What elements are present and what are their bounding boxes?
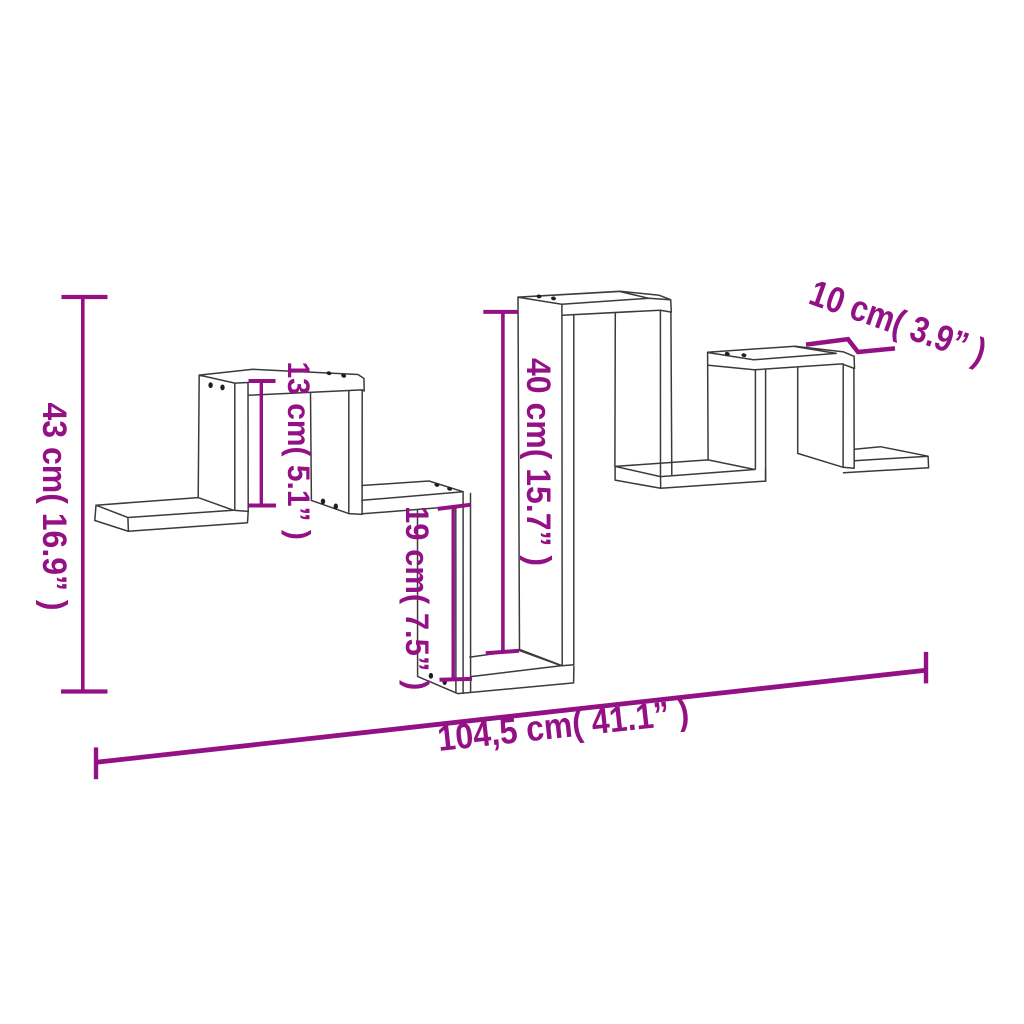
- svg-text:43 cm( 16.9” ): 43 cm( 16.9” ): [36, 403, 74, 611]
- svg-text:40 cm( 15.7” ): 40 cm( 15.7” ): [520, 358, 558, 566]
- svg-text:13 cm( 5.1” ): 13 cm( 5.1” ): [281, 362, 317, 540]
- svg-text:19 cm( 7.5” ): 19 cm( 7.5” ): [399, 506, 436, 690]
